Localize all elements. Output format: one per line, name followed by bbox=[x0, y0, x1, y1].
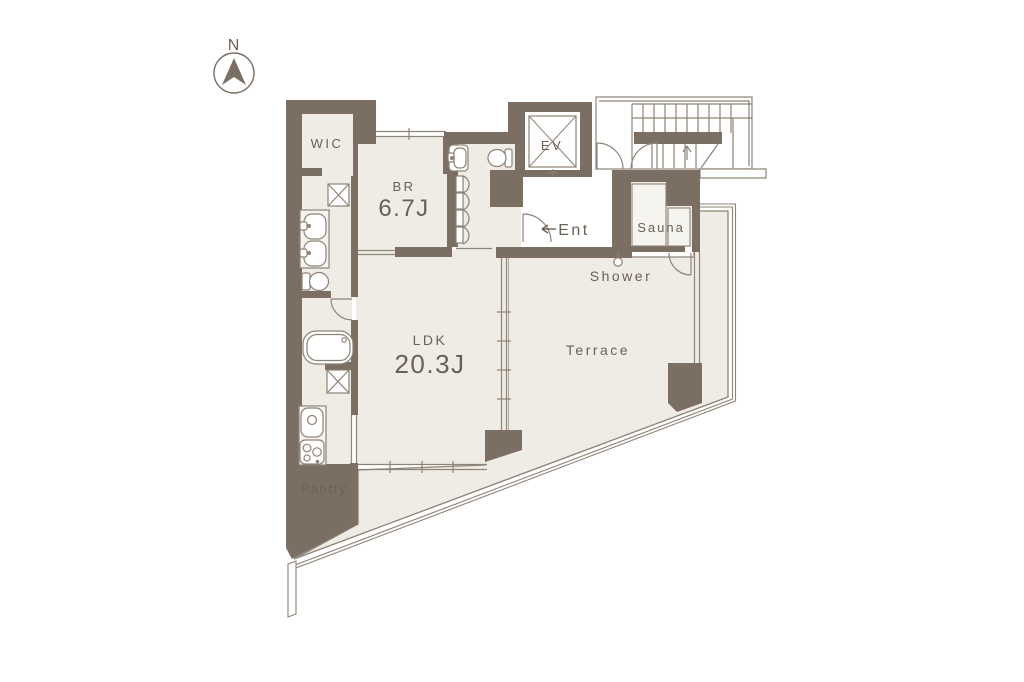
floor-plan: N WIC BR 6.7J EV Ent Sauna Shower LDK 20… bbox=[0, 0, 1024, 682]
toilet-2-icon bbox=[488, 149, 512, 167]
toilet-icon bbox=[302, 273, 329, 291]
pantry-label: Pantry bbox=[301, 481, 348, 496]
kitchen-pass-window bbox=[352, 415, 357, 463]
staircase-icon bbox=[596, 97, 766, 178]
ev-label: EV bbox=[541, 138, 563, 153]
floor-plan-canvas: N WIC BR 6.7J EV Ent Sauna Shower LDK 20… bbox=[0, 0, 1024, 682]
wic-label: WIC bbox=[311, 136, 344, 151]
br-label: BR bbox=[392, 179, 415, 194]
terrace-label: Terrace bbox=[566, 342, 630, 358]
bathtub-icon bbox=[303, 331, 353, 364]
railing-end-fin bbox=[288, 561, 296, 617]
small-sink-icon bbox=[448, 145, 468, 171]
sauna-label: Sauna bbox=[637, 220, 685, 235]
ldk-size: 20.3J bbox=[394, 349, 465, 379]
ldk-label: LDK bbox=[413, 332, 448, 348]
stair-landing-wall bbox=[634, 132, 722, 144]
double-vanity-icon bbox=[300, 210, 329, 268]
passage-floor bbox=[490, 207, 525, 250]
stair-landing-strip bbox=[700, 169, 766, 178]
stove-icon bbox=[300, 440, 324, 464]
compass-label: N bbox=[228, 37, 241, 54]
compass-north-icon: N bbox=[214, 37, 254, 93]
shower-label: Shower bbox=[590, 268, 652, 284]
br-size: 6.7J bbox=[378, 195, 429, 222]
ent-label: Ent bbox=[558, 222, 590, 239]
